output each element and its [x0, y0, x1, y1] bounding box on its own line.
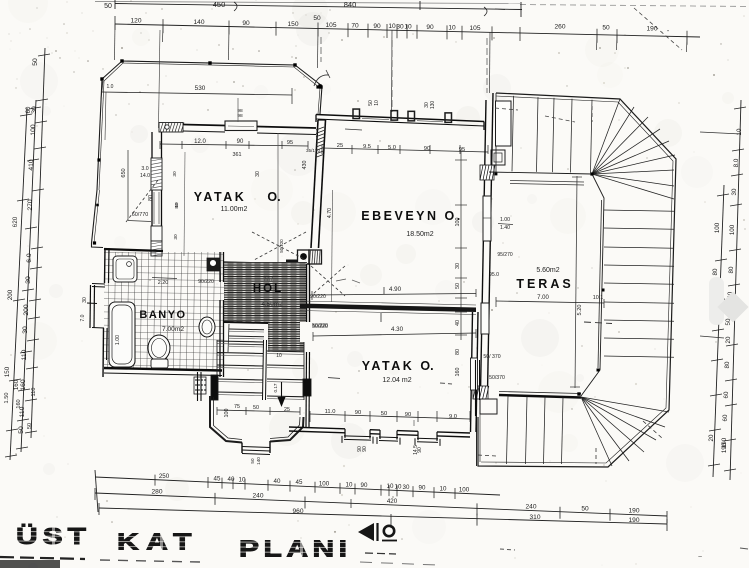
- svg-text:10: 10: [346, 481, 353, 488]
- svg-text:30: 30: [31, 106, 38, 114]
- svg-text:160: 160: [455, 368, 461, 377]
- svg-text:90/220: 90/220: [198, 279, 214, 285]
- svg-text:150: 150: [287, 21, 298, 28]
- svg-text:0.17: 0.17: [273, 383, 278, 392]
- svg-text:90: 90: [373, 23, 381, 30]
- svg-text:130: 130: [430, 101, 436, 110]
- svg-text:10: 10: [387, 483, 394, 490]
- svg-text:270: 270: [27, 199, 34, 211]
- svg-text:1.50: 1.50: [4, 393, 10, 404]
- svg-text:90: 90: [355, 410, 361, 416]
- svg-text:2.20: 2.20: [158, 280, 169, 286]
- svg-text:90: 90: [424, 146, 430, 152]
- svg-text:4.50m2: 4.50m2: [261, 301, 283, 308]
- svg-text:80: 80: [712, 268, 719, 275]
- svg-text:EBEVEYN O.: EBEVEYN O.: [361, 209, 462, 223]
- svg-text:4.70: 4.70: [327, 208, 333, 218]
- svg-text:40: 40: [455, 320, 461, 326]
- svg-text:361: 361: [233, 152, 242, 158]
- svg-text:35/170: 35/170: [306, 148, 320, 153]
- svg-text:TERAS: TERAS: [516, 277, 573, 291]
- svg-text:O.: O.: [267, 190, 280, 204]
- svg-text:18.50m2: 18.50m2: [406, 231, 433, 238]
- svg-text:410: 410: [28, 159, 35, 171]
- svg-text:40: 40: [274, 478, 281, 485]
- svg-text:5.60m2: 5.60m2: [536, 267, 559, 274]
- svg-text:840: 840: [344, 0, 357, 9]
- svg-text:9.0: 9.0: [449, 414, 457, 420]
- svg-text:50: 50: [313, 15, 321, 22]
- svg-text:30: 30: [731, 188, 738, 195]
- svg-text:110: 110: [31, 388, 37, 397]
- svg-text:50: 50: [581, 506, 589, 513]
- svg-text:100: 100: [455, 218, 461, 227]
- svg-text:280: 280: [151, 488, 162, 495]
- svg-text:6.0: 6.0: [26, 253, 33, 263]
- svg-text:100: 100: [224, 409, 230, 418]
- svg-text:90: 90: [362, 446, 368, 452]
- svg-text:190: 190: [646, 25, 657, 32]
- svg-text:25: 25: [337, 143, 343, 149]
- svg-text:50/220: 50/220: [312, 324, 328, 330]
- svg-text:160: 160: [20, 379, 27, 391]
- svg-text:14.0: 14.0: [140, 173, 150, 179]
- svg-text:90: 90: [419, 485, 426, 492]
- svg-text:80: 80: [724, 361, 731, 368]
- svg-text:120: 120: [130, 17, 141, 24]
- svg-text:25: 25: [284, 407, 290, 413]
- svg-text:YATAK: YATAK: [194, 190, 247, 204]
- svg-text:60: 60: [723, 391, 730, 398]
- svg-text:75: 75: [234, 404, 240, 410]
- svg-text:1.00: 1.00: [115, 335, 121, 345]
- svg-text:BANYO: BANYO: [139, 309, 186, 321]
- svg-text:95: 95: [287, 140, 293, 146]
- svg-text:50: 50: [27, 423, 33, 429]
- svg-text:50/370: 50/370: [489, 375, 505, 381]
- svg-text:80: 80: [455, 349, 461, 355]
- svg-text:160: 160: [16, 399, 22, 408]
- svg-text:200: 200: [7, 289, 14, 300]
- svg-text:11.0: 11.0: [325, 409, 336, 415]
- svg-text:5.0: 5.0: [388, 145, 396, 151]
- svg-text:140: 140: [256, 457, 261, 465]
- svg-text:240: 240: [525, 504, 536, 511]
- svg-text:10.1: 10.1: [593, 295, 604, 301]
- svg-text:105: 105: [325, 22, 336, 29]
- svg-text:250: 250: [159, 473, 170, 480]
- svg-text:50: 50: [455, 283, 461, 289]
- svg-text:100: 100: [714, 222, 721, 233]
- svg-text:30: 30: [172, 171, 178, 177]
- svg-text:10: 10: [736, 128, 743, 135]
- svg-text:80: 80: [728, 266, 735, 273]
- svg-text:30: 30: [22, 326, 29, 334]
- svg-text:1.0: 1.0: [107, 84, 114, 90]
- svg-text:200: 200: [23, 304, 30, 316]
- svg-text:90: 90: [361, 482, 368, 489]
- svg-text:~: ~: [698, 554, 702, 561]
- svg-text:160: 160: [13, 379, 20, 390]
- svg-text:9.5: 9.5: [363, 144, 371, 150]
- svg-text:430: 430: [302, 161, 308, 170]
- svg-text:30: 30: [455, 263, 461, 269]
- svg-text:45: 45: [214, 476, 221, 483]
- svg-text:10: 10: [276, 353, 282, 359]
- svg-text:10: 10: [388, 23, 396, 30]
- svg-text:95.0: 95.0: [489, 272, 499, 278]
- svg-text:60/770: 60/770: [132, 212, 149, 218]
- svg-text:45: 45: [296, 479, 303, 486]
- svg-text:190: 190: [628, 517, 639, 524]
- svg-text:50/ 370: 50/ 370: [483, 354, 500, 360]
- svg-text:190: 190: [721, 437, 728, 448]
- svg-text:30: 30: [255, 171, 261, 177]
- svg-text:30: 30: [173, 234, 179, 240]
- svg-text:100: 100: [729, 224, 736, 235]
- svg-text:12.0: 12.0: [194, 139, 206, 145]
- svg-text:140: 140: [193, 19, 204, 26]
- svg-text:3.0: 3.0: [141, 166, 148, 172]
- svg-text:50: 50: [381, 411, 387, 417]
- svg-text:50: 50: [32, 58, 39, 66]
- svg-text:30: 30: [25, 276, 32, 284]
- svg-text:10: 10: [374, 100, 380, 106]
- svg-text:100: 100: [319, 480, 330, 487]
- svg-text:310: 310: [529, 514, 540, 521]
- svg-text:20: 20: [725, 336, 732, 343]
- svg-text:1.40: 1.40: [500, 225, 510, 231]
- svg-text:260: 260: [554, 23, 565, 30]
- svg-text:50: 50: [253, 405, 259, 411]
- svg-text:10: 10: [440, 486, 447, 493]
- svg-text:420: 420: [387, 498, 398, 505]
- svg-text:620: 620: [12, 216, 19, 227]
- svg-text:90: 90: [426, 24, 434, 31]
- svg-text:30: 30: [396, 23, 404, 30]
- svg-text:50: 50: [104, 3, 112, 10]
- svg-text:1.00: 1.00: [500, 217, 510, 223]
- svg-text:PLANI: PLANI: [239, 536, 351, 562]
- svg-text:7.0: 7.0: [80, 314, 86, 321]
- svg-text:50: 50: [250, 458, 255, 464]
- svg-text:8.0: 8.0: [733, 158, 740, 167]
- svg-text:10: 10: [174, 202, 180, 208]
- svg-text:190: 190: [628, 508, 639, 515]
- svg-text:150: 150: [4, 366, 11, 377]
- svg-text:YATAK: YATAK: [362, 359, 415, 373]
- svg-text:10: 10: [395, 484, 402, 491]
- svg-text:90: 90: [242, 20, 250, 27]
- svg-text:4.30: 4.30: [391, 326, 404, 333]
- svg-text:40: 40: [228, 476, 235, 483]
- svg-text:90: 90: [405, 412, 411, 418]
- svg-text:10: 10: [448, 24, 456, 31]
- svg-text:90: 90: [237, 139, 244, 145]
- svg-text:50: 50: [602, 24, 610, 31]
- svg-text:30: 30: [403, 484, 410, 491]
- svg-text:7.07: 7.07: [263, 277, 273, 283]
- svg-text:70: 70: [351, 22, 359, 29]
- svg-text:12.04 m2: 12.04 m2: [382, 377, 411, 384]
- svg-text:90/220: 90/220: [310, 294, 326, 300]
- svg-text:80: 80: [148, 195, 154, 201]
- svg-text:95/270: 95/270: [497, 252, 513, 258]
- svg-text:530: 530: [195, 85, 206, 92]
- svg-text:95: 95: [459, 147, 465, 153]
- svg-text:O.: O.: [420, 359, 433, 373]
- svg-text:100: 100: [459, 487, 470, 494]
- svg-text:50: 50: [18, 426, 25, 434]
- svg-text:7.00m2: 7.00m2: [162, 326, 184, 333]
- svg-text:11.00m2: 11.00m2: [221, 206, 248, 213]
- svg-text:960: 960: [292, 508, 303, 515]
- svg-text:7.00: 7.00: [537, 295, 549, 301]
- svg-text:240: 240: [252, 493, 263, 500]
- svg-text:HOL: HOL: [253, 283, 283, 295]
- svg-text:450: 450: [213, 0, 226, 9]
- svg-text:60: 60: [26, 106, 32, 113]
- svg-text:100: 100: [30, 124, 37, 136]
- svg-text:110: 110: [21, 349, 28, 360]
- svg-text:90: 90: [417, 447, 423, 453]
- svg-text:105: 105: [469, 25, 480, 32]
- svg-text:650: 650: [121, 168, 127, 177]
- svg-text:5.20: 5.20: [577, 305, 583, 316]
- svg-text:20: 20: [708, 434, 715, 441]
- svg-text:10: 10: [404, 24, 412, 31]
- svg-text:4.90: 4.90: [389, 286, 402, 293]
- svg-text:60: 60: [722, 414, 729, 421]
- svg-text:30: 30: [82, 297, 88, 303]
